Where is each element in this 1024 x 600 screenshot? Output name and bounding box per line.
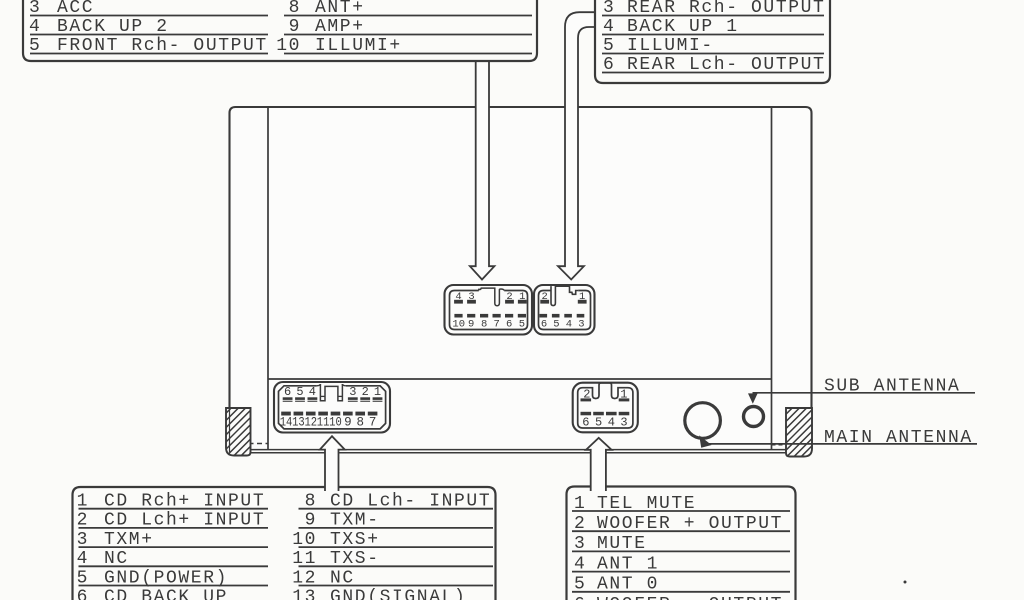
svg-text:7: 7 xyxy=(493,319,499,331)
svg-text:6: 6 xyxy=(574,595,586,600)
svg-text:1: 1 xyxy=(579,291,585,303)
svg-text:FRONT Rch- OUTPUT: FRONT Rch- OUTPUT xyxy=(57,36,268,56)
svg-text:2: 2 xyxy=(542,291,548,303)
svg-text:2: 2 xyxy=(574,514,586,534)
svg-text:6: 6 xyxy=(284,385,291,399)
svg-text:13: 13 xyxy=(292,588,317,600)
svg-text:6: 6 xyxy=(77,588,89,600)
svg-text:9: 9 xyxy=(289,17,301,37)
svg-text:3: 3 xyxy=(603,0,615,18)
svg-text:9: 9 xyxy=(468,319,474,331)
svg-text:4: 4 xyxy=(29,17,41,37)
svg-text:13: 13 xyxy=(292,416,305,430)
svg-text:5: 5 xyxy=(519,319,525,331)
svg-text:6: 6 xyxy=(582,416,589,430)
svg-text:CD Lch+ INPUT: CD Lch+ INPUT xyxy=(104,511,265,531)
svg-text:8: 8 xyxy=(305,492,317,512)
svg-text:11: 11 xyxy=(317,416,330,430)
svg-text:8: 8 xyxy=(289,0,301,18)
svg-text:2: 2 xyxy=(506,291,512,303)
svg-text:4: 4 xyxy=(608,416,615,430)
svg-text:10: 10 xyxy=(292,530,317,550)
svg-text:ILLUMI-: ILLUMI- xyxy=(627,36,714,56)
svg-text:5: 5 xyxy=(595,416,602,430)
svg-text:5: 5 xyxy=(553,319,559,331)
svg-text:AMP+: AMP+ xyxy=(315,17,365,37)
svg-text:14: 14 xyxy=(280,416,293,430)
svg-text:MAIN ANTENNA: MAIN ANTENNA xyxy=(824,428,973,448)
svg-text:4: 4 xyxy=(603,17,615,37)
svg-text:TXS+: TXS+ xyxy=(330,530,380,550)
svg-text:WOOFER + OUTPUT: WOOFER + OUTPUT xyxy=(597,514,783,534)
svg-text:NC: NC xyxy=(104,549,129,569)
svg-text:ANT+: ANT+ xyxy=(315,0,365,18)
svg-text:4: 4 xyxy=(574,554,586,574)
svg-text:3: 3 xyxy=(574,534,586,554)
svg-text:2: 2 xyxy=(583,388,590,402)
svg-text:5: 5 xyxy=(574,575,586,595)
svg-text:1: 1 xyxy=(620,388,627,402)
svg-text:GND(SIGNAL): GND(SIGNAL) xyxy=(330,588,466,600)
svg-text:ANT 0: ANT 0 xyxy=(597,575,659,595)
svg-text:REAR Rch- OUTPUT: REAR Rch- OUTPUT xyxy=(627,0,825,18)
svg-text:9: 9 xyxy=(305,511,317,531)
svg-text:4: 4 xyxy=(566,319,572,331)
svg-text:4: 4 xyxy=(455,291,461,303)
svg-text:10: 10 xyxy=(452,319,465,331)
svg-text:MUTE: MUTE xyxy=(597,534,647,554)
svg-text:WOOFER - OUTPUT: WOOFER - OUTPUT xyxy=(597,595,783,600)
svg-text:GND(POWER): GND(POWER) xyxy=(104,568,228,588)
svg-text:BACK UP 2: BACK UP 2 xyxy=(57,17,169,37)
svg-text:8: 8 xyxy=(356,416,364,430)
svg-text:2: 2 xyxy=(77,511,89,531)
svg-text:6: 6 xyxy=(541,319,547,331)
svg-text:ILLUMI+: ILLUMI+ xyxy=(315,36,402,56)
svg-text:5: 5 xyxy=(603,36,615,56)
svg-text:7: 7 xyxy=(369,416,377,430)
svg-text:11: 11 xyxy=(292,549,317,569)
svg-text:BACK UP 1: BACK UP 1 xyxy=(627,17,739,37)
svg-text:3: 3 xyxy=(77,530,89,550)
svg-text:3: 3 xyxy=(468,291,474,303)
svg-text:TEL MUTE: TEL MUTE xyxy=(597,494,696,514)
svg-text:CD Rch+ INPUT: CD Rch+ INPUT xyxy=(104,492,265,512)
svg-text:1: 1 xyxy=(77,492,89,512)
svg-text:2: 2 xyxy=(362,385,369,399)
svg-text:CD Lch- INPUT: CD Lch- INPUT xyxy=(330,492,491,512)
svg-text:1: 1 xyxy=(374,385,381,399)
svg-text:5: 5 xyxy=(29,36,41,56)
svg-text:10: 10 xyxy=(276,36,301,56)
svg-text:CD BACK UP: CD BACK UP xyxy=(104,588,228,600)
svg-text:6: 6 xyxy=(506,319,512,331)
svg-text:ANT 1: ANT 1 xyxy=(597,554,659,574)
svg-text:4: 4 xyxy=(77,549,89,569)
svg-text:6: 6 xyxy=(603,55,615,75)
svg-text:12: 12 xyxy=(304,416,317,430)
svg-text:5: 5 xyxy=(296,385,303,399)
svg-text:REAR Lch- OUTPUT: REAR Lch- OUTPUT xyxy=(627,55,825,75)
svg-text:SUB ANTENNA: SUB ANTENNA xyxy=(824,377,960,397)
svg-text:TXM-: TXM- xyxy=(330,511,380,531)
svg-text:TXS-: TXS- xyxy=(330,549,380,569)
svg-text:1: 1 xyxy=(574,494,586,514)
svg-text:3: 3 xyxy=(349,385,356,399)
svg-text:10: 10 xyxy=(329,416,342,430)
svg-text:12: 12 xyxy=(292,568,317,588)
svg-text:8: 8 xyxy=(481,319,487,331)
svg-text:9: 9 xyxy=(344,416,352,430)
svg-text:4: 4 xyxy=(309,385,316,399)
svg-text:TXM+: TXM+ xyxy=(104,530,154,550)
svg-text:5: 5 xyxy=(77,568,89,588)
svg-text:1: 1 xyxy=(519,291,525,303)
svg-text:NC: NC xyxy=(330,568,355,588)
svg-text:3: 3 xyxy=(620,416,627,430)
svg-text:ACC: ACC xyxy=(57,0,94,18)
svg-text:3: 3 xyxy=(578,319,584,331)
svg-text:3: 3 xyxy=(29,0,41,18)
